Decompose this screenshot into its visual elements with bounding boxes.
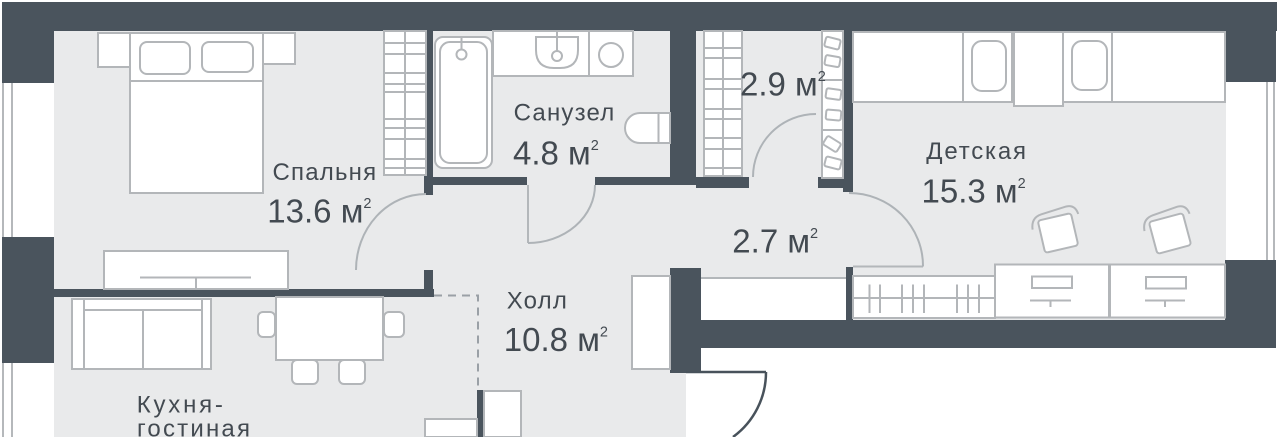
svg-text:Санузел: Санузел: [514, 100, 616, 127]
svg-text:4.8 м2: 4.8 м2: [513, 135, 599, 172]
svg-text:гостиная: гостиная: [137, 416, 252, 437]
svg-text:Холл: Холл: [507, 288, 568, 315]
svg-text:Кухня-: Кухня-: [137, 392, 226, 419]
svg-text:13.6 м2: 13.6 м2: [267, 193, 371, 230]
svg-text:10.8 м2: 10.8 м2: [504, 321, 608, 358]
svg-text:Детская: Детская: [926, 138, 1028, 165]
svg-text:2.7 м2: 2.7 м2: [732, 222, 818, 259]
svg-text:2.9 м2: 2.9 м2: [740, 66, 826, 103]
svg-text:15.3 м2: 15.3 м2: [922, 173, 1026, 210]
svg-text:Спальня: Спальня: [273, 159, 378, 186]
